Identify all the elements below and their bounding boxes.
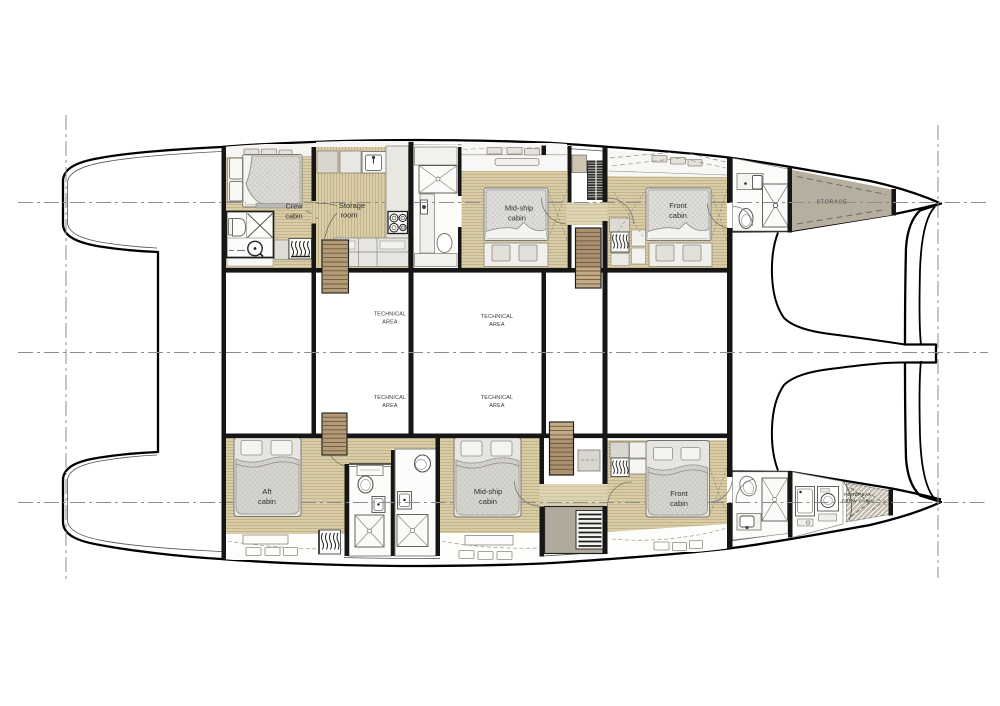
svg-text:cabin: cabin	[670, 499, 688, 508]
svg-text:Front: Front	[669, 201, 687, 210]
svg-text:TECHNICAL: TECHNICAL	[374, 312, 406, 318]
svg-text:cabin: cabin	[285, 212, 302, 221]
svg-text:Crew: Crew	[286, 202, 304, 211]
svg-text:FOREPEAK: FOREPEAK	[844, 492, 872, 497]
svg-text:Mid-ship: Mid-ship	[474, 487, 502, 496]
svg-text:TECHNICAL: TECHNICAL	[481, 314, 513, 320]
svg-text:cabin: cabin	[508, 214, 526, 223]
svg-text:room: room	[340, 211, 357, 220]
svg-text:TECHNICAL: TECHNICAL	[481, 395, 513, 401]
svg-text:cabin: cabin	[669, 211, 687, 220]
svg-text:TECHNICAL: TECHNICAL	[374, 395, 406, 401]
svg-text:AREA: AREA	[489, 403, 505, 409]
svg-text:cabin: cabin	[258, 497, 276, 506]
svg-text:Mid-ship: Mid-ship	[505, 204, 533, 213]
svg-text:Aft: Aft	[262, 487, 272, 496]
svg-text:AREA: AREA	[382, 320, 398, 326]
svg-text:Front: Front	[670, 489, 688, 498]
svg-text:AREA: AREA	[382, 403, 398, 409]
svg-text:cabin: cabin	[479, 497, 497, 506]
svg-text:AREA: AREA	[489, 322, 505, 328]
